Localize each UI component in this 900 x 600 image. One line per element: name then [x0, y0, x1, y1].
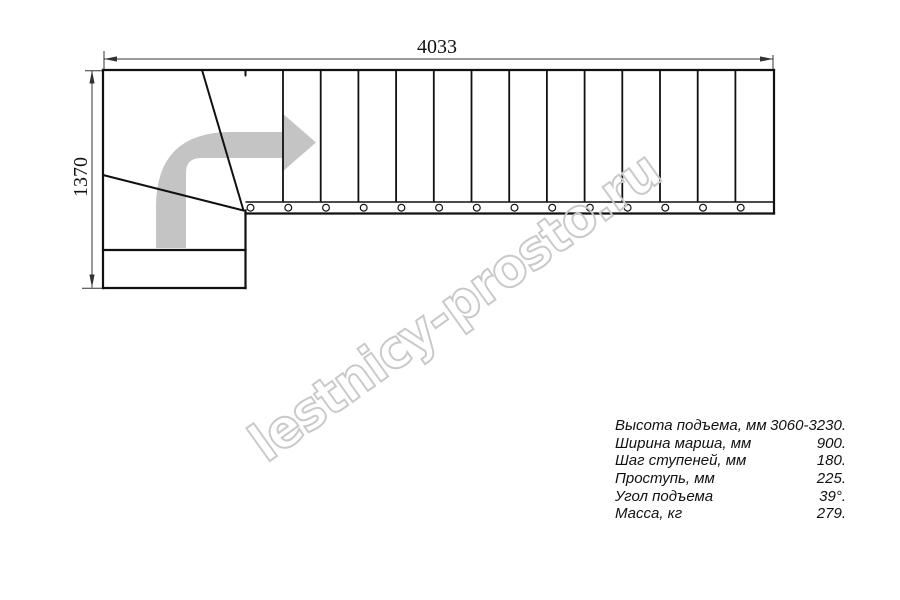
direction-arrow-icon [156, 113, 316, 248]
baluster-circle [624, 204, 631, 211]
spec-row-angle: Угол подъема 39°. [615, 488, 846, 506]
spec-label: Шаг ступеней, мм [615, 452, 746, 470]
spec-row-tread: Проступь, мм 225. [615, 470, 846, 488]
spec-label: Проступь, мм [615, 470, 715, 488]
baluster-circle [700, 204, 707, 211]
specs-table: Высота подъема, мм 3060-3230. Ширина мар… [615, 417, 846, 523]
dimension-arrow-down-icon [89, 275, 94, 288]
spec-value: 180. [817, 452, 846, 470]
spec-row-flight-width: Ширина марша, мм 900. [615, 435, 846, 453]
dimension-width-label: 4033 [417, 36, 457, 58]
baluster-circle [398, 204, 405, 211]
staircase-drawing-page: 4033 1370 lestnicy-prosto.ru Высота подъ… [0, 0, 900, 600]
spec-value: 3060-3230. [770, 417, 846, 435]
dimension-arrow-left-icon [104, 56, 117, 61]
baluster-circle [662, 204, 669, 211]
dimension-height-label: 1370 [70, 157, 92, 197]
spec-row-step-pitch: Шаг ступеней, мм 180. [615, 452, 846, 470]
baluster-circle [473, 204, 480, 211]
spec-value: 39°. [819, 488, 846, 506]
spec-label: Угол подъема [615, 488, 713, 506]
spec-row-height: Высота подъема, мм 3060-3230. [615, 417, 846, 435]
baluster-circle [549, 204, 556, 211]
baluster-circle [737, 204, 744, 211]
dimension-arrow-right-icon [760, 56, 773, 61]
baluster-circle [323, 204, 330, 211]
spec-label: Высота подъема, мм [615, 417, 767, 435]
spec-label: Масса, кг [615, 505, 682, 523]
baluster-circle [436, 204, 443, 211]
baluster-circle [285, 204, 292, 211]
spec-value: 225. [817, 470, 846, 488]
baluster-circle [360, 204, 367, 211]
baluster-circles [247, 204, 744, 211]
spec-value: 279. [817, 505, 846, 523]
step-lines [283, 70, 735, 202]
baluster-circle [587, 204, 594, 211]
baluster-circle [247, 204, 254, 211]
direction-arrow-shape [156, 113, 316, 248]
spec-row-mass: Масса, кг 279. [615, 505, 846, 523]
baluster-circle [511, 204, 518, 211]
stair-outline [103, 70, 774, 288]
spec-value: 900. [817, 435, 846, 453]
spec-label: Ширина марша, мм [615, 435, 751, 453]
dimension-arrow-up-icon [89, 71, 94, 84]
